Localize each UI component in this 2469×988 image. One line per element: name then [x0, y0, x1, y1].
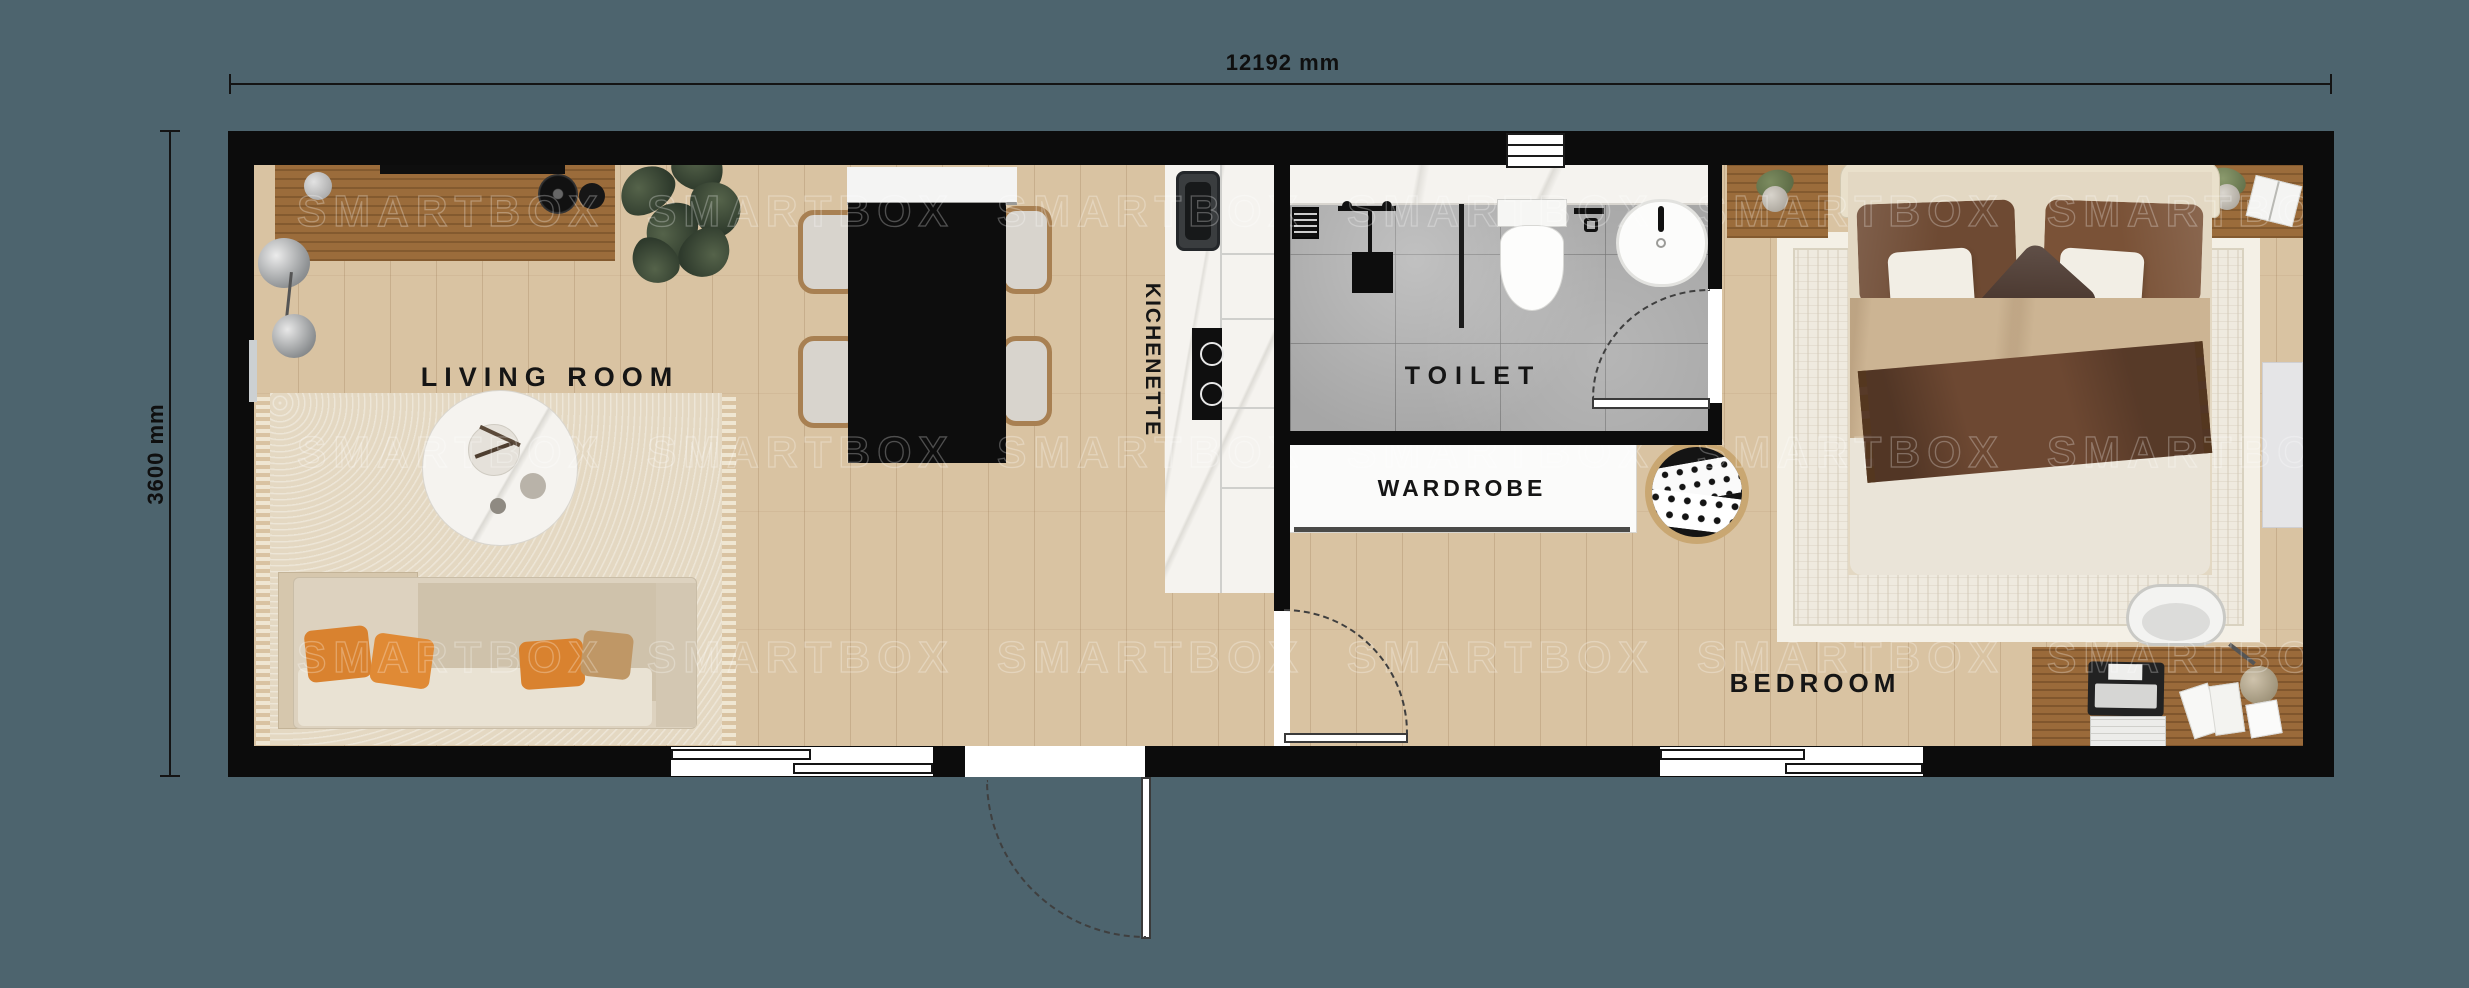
watermark: SMARTBOX: [1697, 197, 2017, 231]
watermark: SMARTBOX: [997, 197, 1317, 231]
wall-bottom: [228, 746, 2334, 777]
watermark: SMARTBOX: [1697, 438, 2017, 472]
watermark: SMARTBOX: [297, 438, 617, 472]
top-dimension-tick-left: [229, 74, 231, 94]
left-wall-vent: [249, 340, 257, 402]
top-dimension-tick-right: [2330, 74, 2332, 94]
wall-right: [2303, 131, 2334, 777]
wall-top: [228, 131, 2334, 165]
sliding-window-bedroom: [1660, 747, 1923, 776]
watermark: SMARTBOX: [297, 643, 617, 677]
entry-door-frame-stub: [952, 748, 965, 775]
left-dimension-tick-bottom: [160, 775, 180, 777]
watermark: SMARTBOX: [647, 643, 967, 677]
left-dimension-tick-top: [160, 130, 180, 132]
window-toilet-top: [1506, 133, 1565, 168]
wall-left: [228, 131, 254, 777]
hall-door-leaf: [1284, 733, 1408, 743]
floor-plan-scene: 12192 mm 3600 mm LIVING ROOM: [0, 0, 2469, 988]
watermark: SMARTBOX: [2047, 643, 2304, 677]
window-mullion: [1508, 155, 1563, 157]
watermark: SMARTBOX: [1347, 197, 1667, 231]
window-pane: [1660, 749, 1805, 760]
watermark: SMARTBOX: [647, 197, 967, 231]
window-pane: [671, 749, 811, 760]
sliding-window-living: [671, 747, 933, 776]
watermark: SMARTBOX: [1697, 643, 2017, 677]
watermark: SMARTBOX: [2047, 438, 2304, 472]
window-pane: [1785, 763, 1923, 774]
window-pane: [793, 763, 933, 774]
entry-door-swing-arc: [986, 780, 1146, 938]
watermark: SMARTBOX: [647, 438, 967, 472]
entry-door-frame-stub: [1145, 748, 1158, 775]
window-mullion: [1508, 144, 1563, 146]
left-dimension-line: [169, 131, 171, 777]
watermark: SMARTBOX: [997, 438, 1317, 472]
wall-toilet-right-upper: [1708, 165, 1722, 289]
watermark: SMARTBOX: [1347, 643, 1667, 677]
watermark: SMARTBOX: [997, 643, 1317, 677]
watermark: SMARTBOX: [2047, 197, 2304, 231]
top-dimension-label: 12192 mm: [1148, 50, 1418, 76]
wall-toilet-left: [1274, 165, 1290, 611]
toilet-door-opening: [1708, 289, 1722, 403]
wall-toilet-bottom: [1274, 431, 1722, 445]
left-dimension-label: 3600 mm: [143, 354, 169, 554]
top-dimension-line: [230, 83, 2332, 85]
toilet-door-leaf: [1592, 398, 1710, 409]
watermark: SMARTBOX: [297, 197, 617, 231]
entry-door-opening: [965, 746, 1145, 777]
